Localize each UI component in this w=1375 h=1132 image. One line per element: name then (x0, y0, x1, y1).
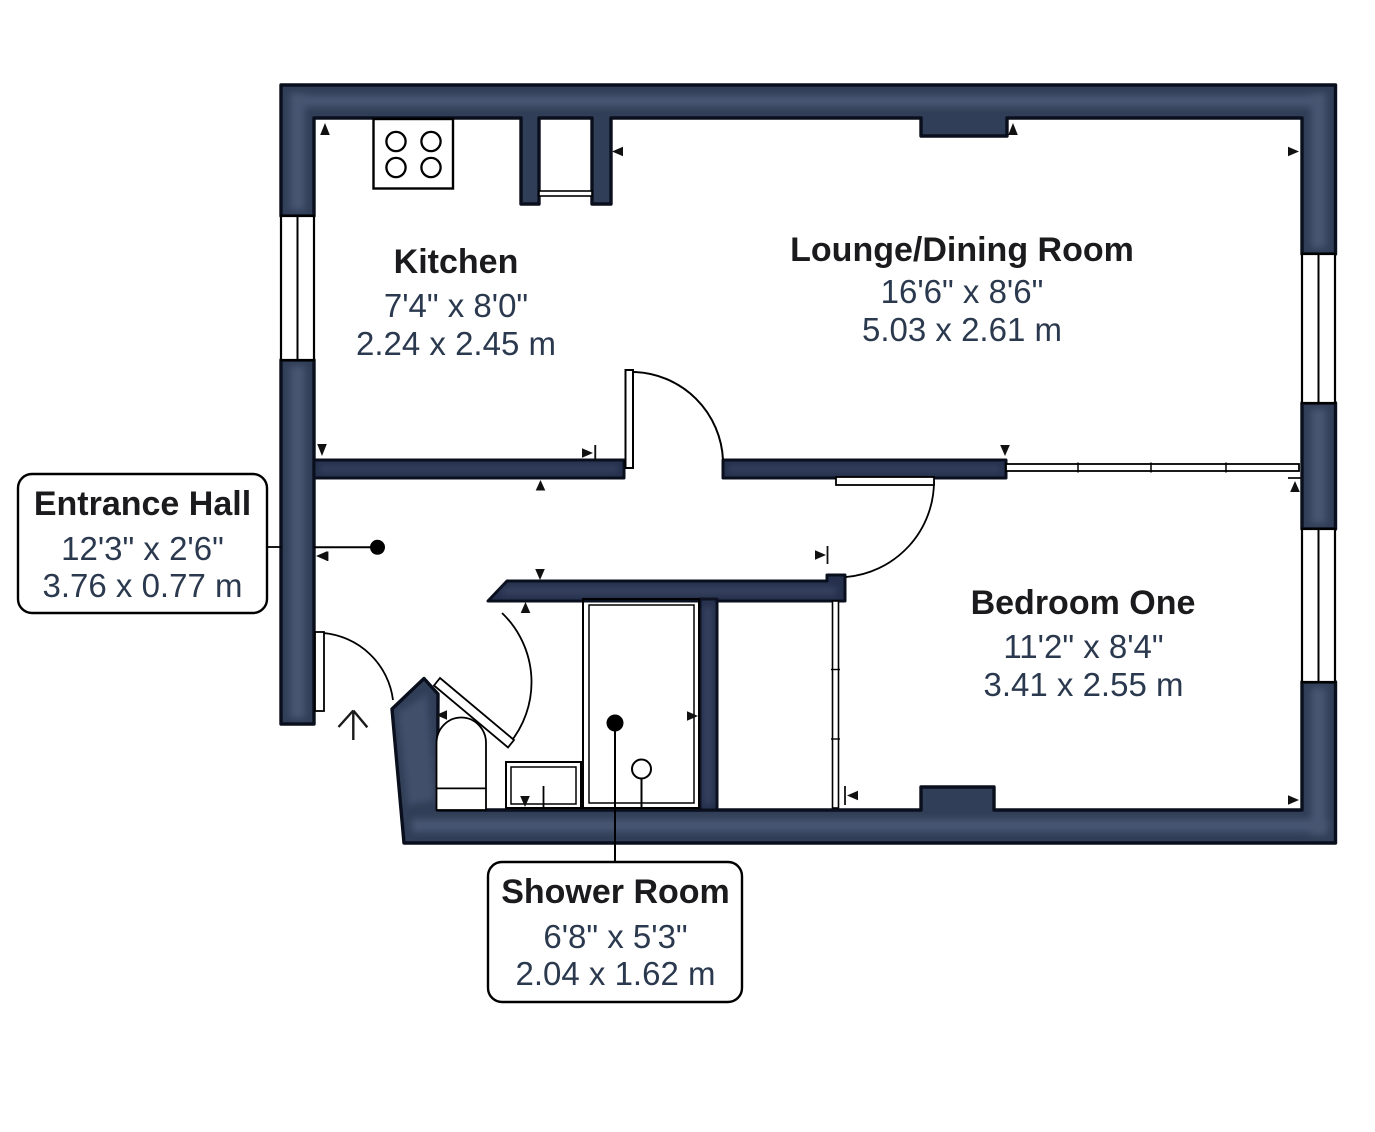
svg-text:Kitchen: Kitchen (394, 243, 519, 281)
svg-text:3.41 x 2.55 m: 3.41 x 2.55 m (984, 666, 1184, 703)
svg-text:5.03 x 2.61 m: 5.03 x 2.61 m (862, 311, 1062, 348)
svg-text:12'3" x 2'6": 12'3" x 2'6" (61, 530, 224, 567)
svg-text:3.76 x 0.77 m: 3.76 x 0.77 m (43, 567, 243, 604)
svg-text:Shower Room: Shower Room (501, 873, 730, 911)
svg-text:2.24 x 2.45 m: 2.24 x 2.45 m (356, 325, 556, 362)
svg-text:6'8" x 5'3": 6'8" x 5'3" (543, 918, 687, 955)
svg-text:Lounge/Dining Room: Lounge/Dining Room (790, 231, 1134, 269)
svg-text:Bedroom One: Bedroom One (971, 584, 1196, 622)
svg-text:2.04 x 1.62 m: 2.04 x 1.62 m (516, 955, 716, 992)
svg-text:16'6" x 8'6": 16'6" x 8'6" (881, 273, 1044, 310)
svg-text:7'4" x 8'0": 7'4" x 8'0" (384, 287, 528, 324)
svg-text:11'2" x 8'4": 11'2" x 8'4" (1003, 628, 1163, 665)
svg-text:Entrance Hall: Entrance Hall (34, 485, 251, 523)
